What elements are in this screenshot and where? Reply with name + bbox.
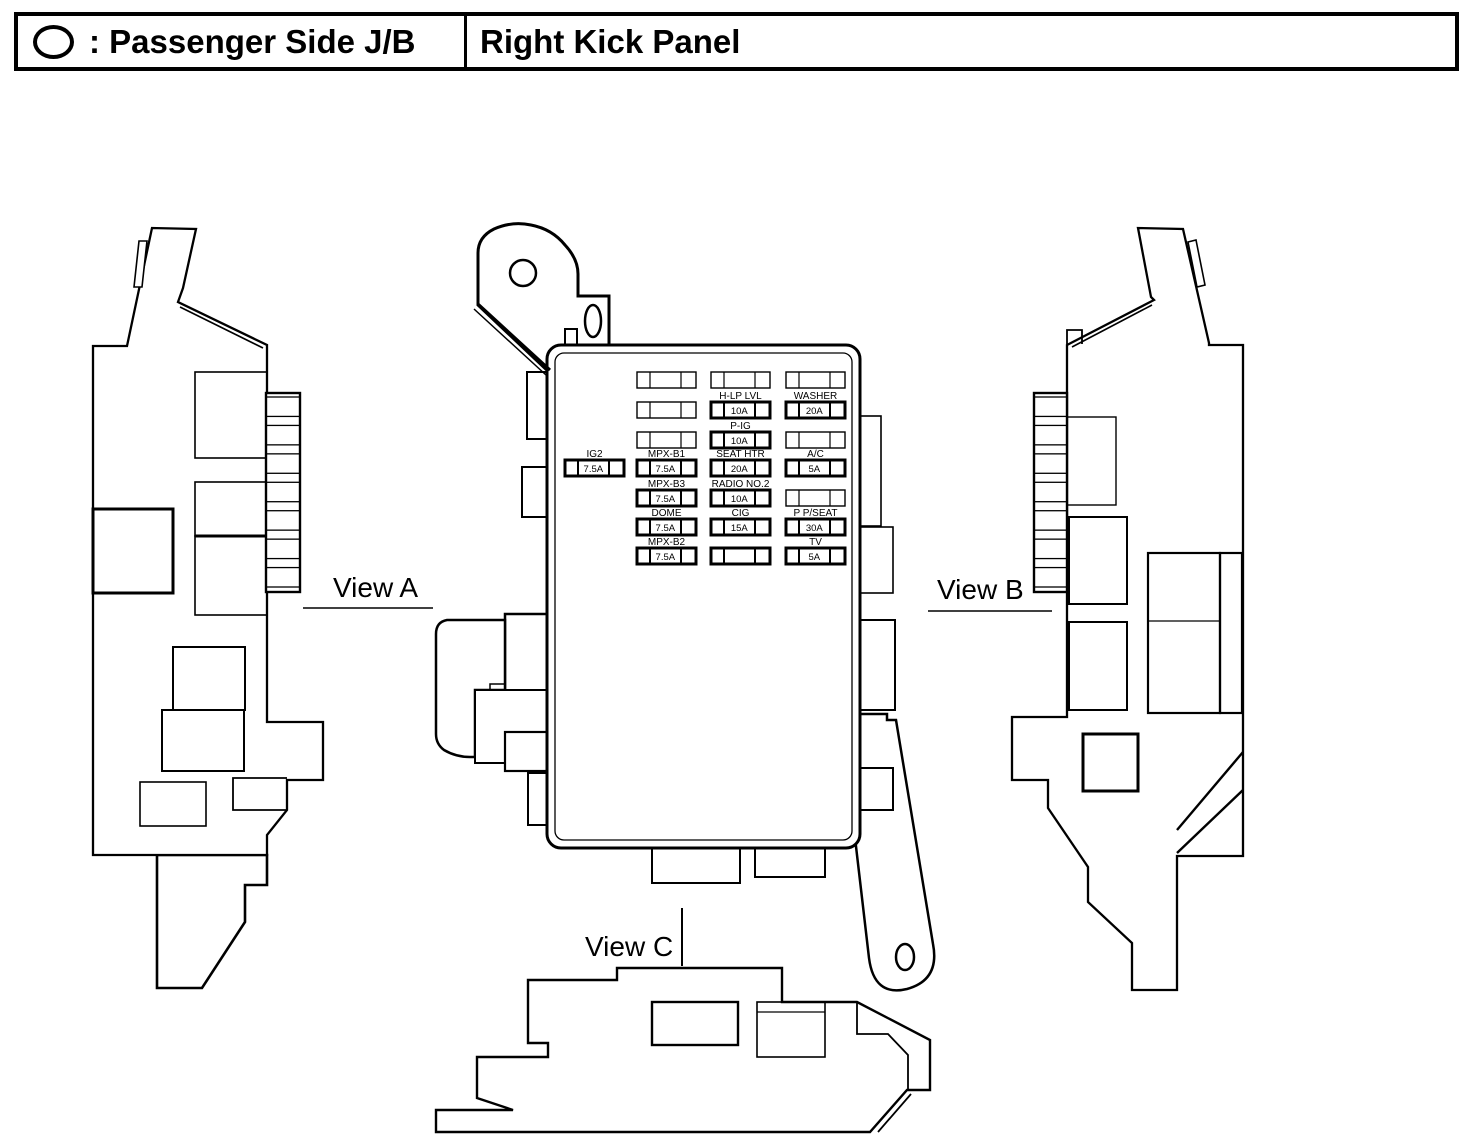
view-a-label: View A — [333, 572, 418, 603]
view-a-foot — [157, 855, 267, 988]
fuse-blank — [637, 402, 696, 418]
fuse-value: 5A — [809, 552, 821, 563]
fuse-slot — [637, 372, 696, 388]
fuse-value: 20A — [806, 406, 824, 417]
fuse-blank — [786, 372, 845, 388]
view-a-terminal-fins — [266, 393, 300, 592]
fuse-label: MPX-B3 — [648, 479, 686, 490]
fuse-label: H-LP LVL — [719, 391, 762, 402]
fuse-label: MPX-B1 — [648, 449, 686, 460]
page: : Passenger Side J/B Right Kick Panel — [0, 0, 1472, 1146]
fin-block — [266, 393, 300, 592]
side-view-b — [1012, 228, 1243, 990]
fuse-label: A/C — [807, 449, 824, 460]
bottom-view-c — [436, 968, 930, 1132]
fuse-label: WASHER — [794, 391, 838, 402]
fuse-value: 5A — [809, 464, 821, 475]
fuse-slot — [711, 372, 770, 388]
fuse-blank — [786, 490, 845, 506]
fuse-label: SEAT HTR — [716, 449, 765, 460]
view-b-terminal-fins — [1034, 393, 1067, 592]
fuse-value: 10A — [731, 436, 749, 447]
top-edge-notch — [565, 329, 577, 346]
fuse-label: P-IG — [730, 421, 751, 432]
fuse-value: 10A — [731, 406, 749, 417]
view-c-label: View C — [585, 931, 673, 962]
fuse-value: 20A — [731, 464, 749, 475]
fuse-value: 7.5A — [656, 464, 676, 475]
left-connector-5 — [505, 732, 552, 771]
view-c-outline — [436, 968, 930, 1132]
fuse-value: 7.5A — [656, 494, 676, 505]
mounting-bracket-right — [852, 714, 934, 990]
side-view-a — [93, 228, 323, 988]
fuse-value: 7.5A — [656, 552, 676, 563]
fuse-slot — [637, 432, 696, 448]
fuse-slot — [786, 490, 845, 506]
fuse-value: 30A — [806, 523, 824, 534]
fuse-blank — [786, 432, 845, 448]
fuse-box-diagram: MPX-B17.5AMPX-B37.5ADOME7.5AMPX-B27.5AH-… — [0, 0, 1472, 1146]
fuse-RADIO NO.2: RADIO NO.210A — [711, 479, 770, 506]
fuse-label: CIG — [732, 508, 750, 519]
fuse-label: RADIO NO.2 — [712, 479, 770, 490]
fuse-label: IG2 — [586, 449, 603, 460]
fuse-P P/SEAT: P P/SEAT30A — [786, 508, 845, 535]
fuse-blank — [637, 432, 696, 448]
fuse-value: 15A — [731, 523, 749, 534]
fuse-SEAT HTR: SEAT HTR20A — [711, 449, 770, 476]
fuse-blank — [711, 372, 770, 388]
view-b-label: View B — [937, 574, 1024, 605]
fuse-slot — [786, 372, 845, 388]
fuse-value: 10A — [731, 494, 749, 505]
fuse-value: 7.5A — [584, 464, 604, 475]
fuse-slot — [711, 548, 770, 564]
fuse-blank — [637, 372, 696, 388]
junction-block-body — [547, 345, 860, 848]
fuse-value: 7.5A — [656, 523, 676, 534]
fuse-label: TV — [809, 537, 822, 548]
fin-block — [1034, 393, 1067, 592]
view-b-outline — [1012, 228, 1243, 990]
fuse-label: DOME — [652, 508, 682, 519]
fuse-label: P P/SEAT — [793, 508, 837, 519]
fuse-slot — [786, 432, 845, 448]
fuse-WASHER: WASHER20A — [786, 391, 845, 418]
fuse-blank — [711, 548, 770, 564]
fuse-slot — [637, 402, 696, 418]
fuse-label: MPX-B2 — [648, 537, 686, 548]
front-view: MPX-B17.5AMPX-B37.5ADOME7.5AMPX-B27.5AH-… — [436, 224, 934, 991]
fuse-H-LP LVL: H-LP LVL10A — [711, 391, 770, 418]
